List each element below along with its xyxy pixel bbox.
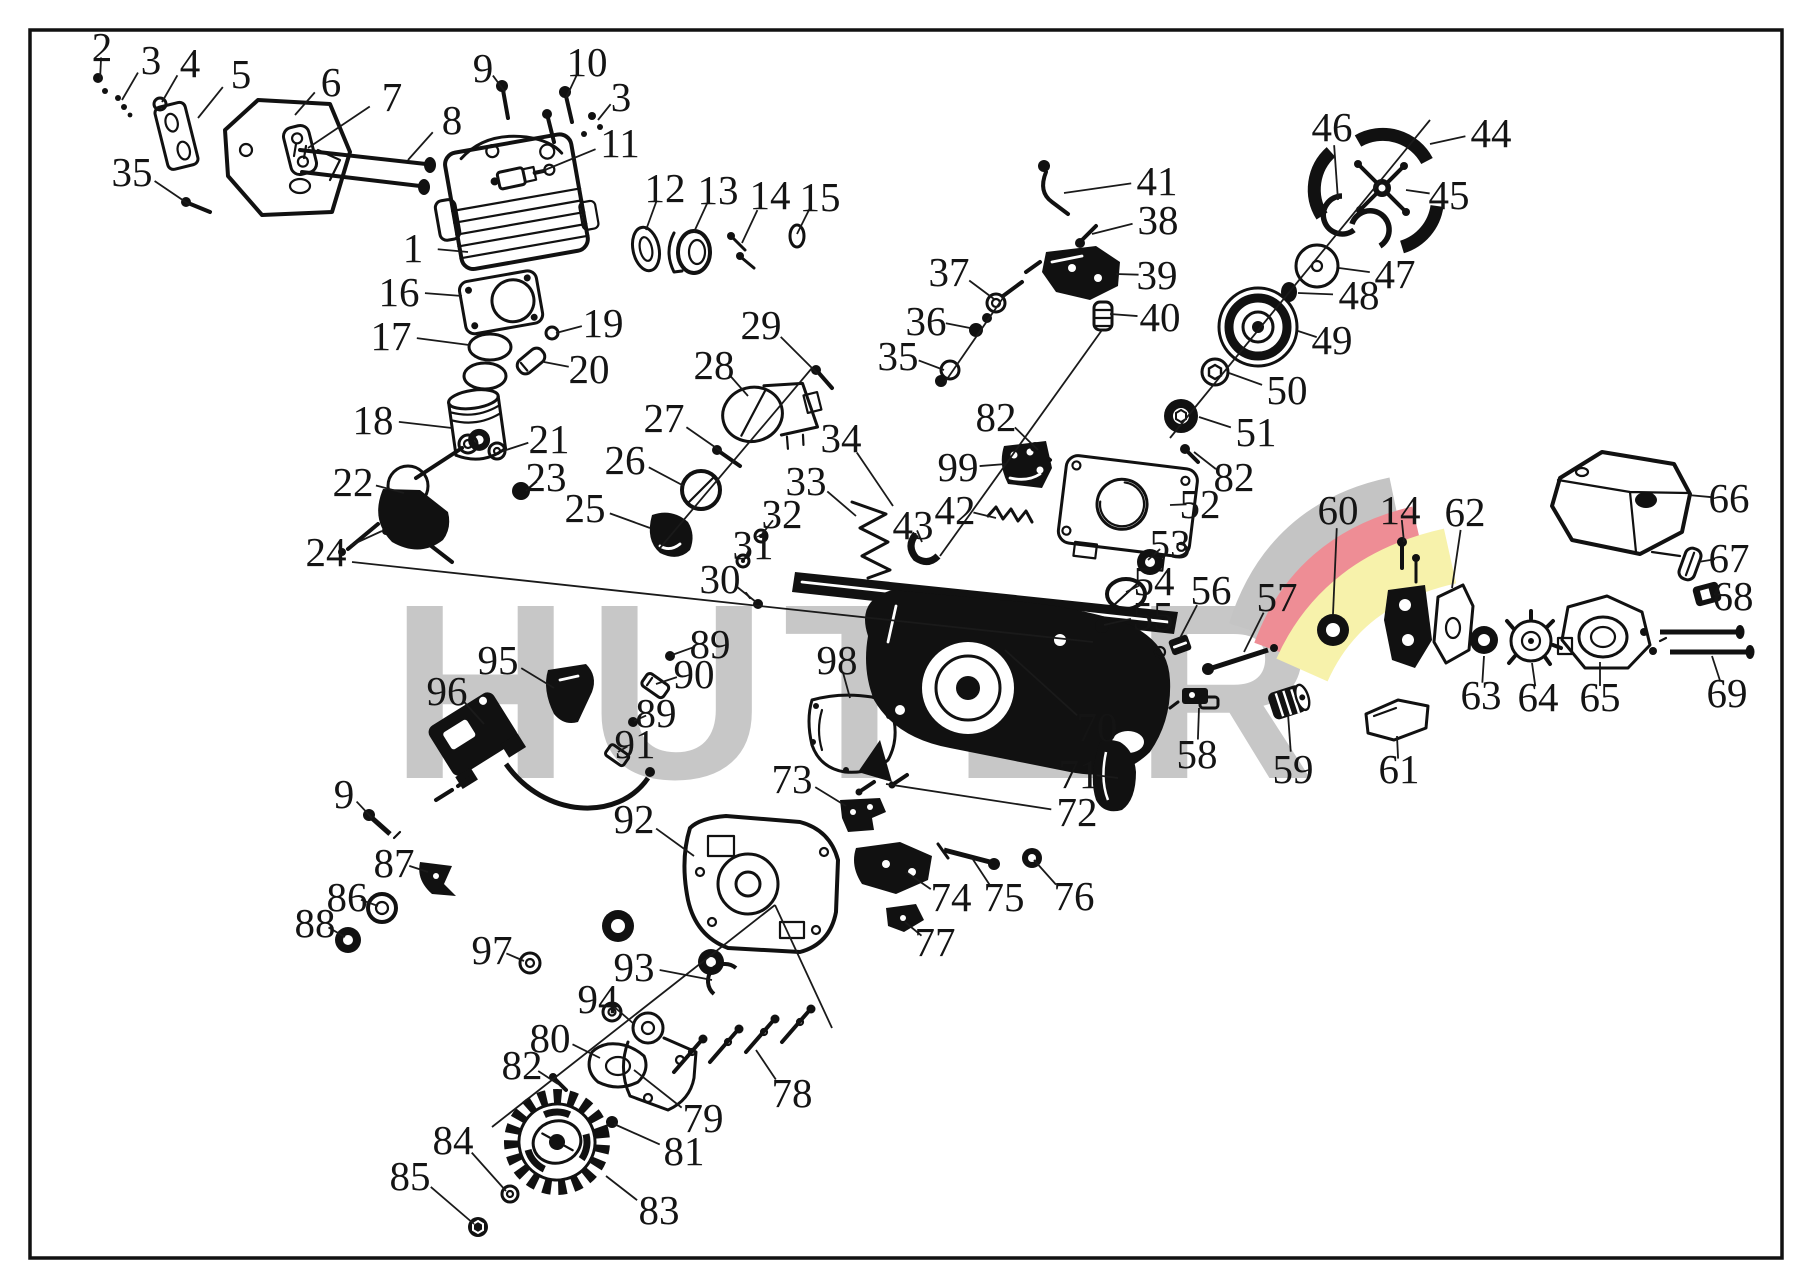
leader-line-99 (980, 464, 1006, 466)
part-label-73: 73 (772, 756, 813, 802)
part-label-27: 27 (644, 395, 685, 441)
part-label-2: 2 (92, 24, 113, 70)
leader-line-79 (634, 1070, 682, 1108)
leader-line-19 (556, 326, 582, 333)
part-label-25: 25 (565, 485, 606, 531)
part-label-38: 38 (1138, 197, 1179, 243)
part-label-28: 28 (694, 342, 735, 388)
leader-line-84 (472, 1153, 506, 1191)
part-label-56: 56 (1191, 567, 1232, 613)
part-label-55: 55 (1133, 593, 1174, 639)
leader-line-48 (1298, 293, 1333, 294)
leader-line-18 (399, 422, 452, 428)
part-label-13: 13 (698, 167, 739, 213)
exploded-view-diagram: HUTER (0, 0, 1809, 1283)
leader-line-85 (431, 1187, 474, 1224)
leader-line-36 (946, 323, 970, 328)
part-label-20: 20 (569, 346, 610, 392)
leader-line-17 (417, 338, 469, 345)
part-label-94: 94 (578, 976, 619, 1022)
spark-plug-11 (489, 161, 556, 191)
part-label-3: 3 (611, 74, 632, 120)
cover-plate-5 (154, 101, 200, 171)
leader-line-62 (1452, 530, 1461, 588)
part-label-12: 12 (645, 165, 686, 211)
part-label-58: 58 (1177, 731, 1218, 777)
base-gasket-16 (458, 269, 544, 335)
part-label-8: 8 (442, 97, 463, 143)
leader-line-35 (155, 181, 190, 205)
leader-line-27 (686, 427, 722, 452)
leader-line-44 (1430, 136, 1465, 144)
part-label-60: 60 (1318, 487, 1359, 533)
leader-line-51 (1199, 417, 1231, 427)
part-label-9: 9 (334, 771, 355, 817)
part-label-90: 90 (674, 651, 715, 697)
part-label-5: 5 (231, 51, 252, 97)
part-label-74: 74 (931, 874, 972, 920)
part-label-84: 84 (433, 1117, 474, 1163)
part-label-59: 59 (1273, 746, 1314, 792)
part-label-57: 57 (1257, 574, 1298, 620)
leader-line-26 (649, 467, 684, 486)
part-label-95: 95 (478, 637, 519, 683)
flywheel-83 (501, 1086, 614, 1199)
part-label-17: 17 (371, 313, 412, 359)
part-label-14: 14 (1380, 487, 1421, 533)
leader-line-41 (1064, 183, 1131, 193)
part-label-61: 61 (1379, 746, 1420, 792)
part-label-9: 9 (473, 45, 494, 91)
fuel-tank-66 (1552, 452, 1690, 554)
part-label-46: 46 (1312, 104, 1353, 150)
part-label-7: 7 (382, 74, 403, 120)
part-label-30: 30 (700, 556, 741, 602)
part-label-99: 99 (938, 444, 979, 490)
part-label-29: 29 (741, 302, 782, 348)
leader-line-35 (919, 360, 944, 370)
part-label-88: 88 (295, 900, 336, 946)
part-label-72: 72 (1057, 789, 1098, 835)
leader-line-7 (308, 106, 370, 148)
part-label-82: 82 (976, 394, 1017, 440)
part-label-69: 69 (1707, 670, 1748, 716)
head-screws-9-10-3 (496, 80, 603, 142)
part-label-23: 23 (526, 454, 567, 500)
part-label-49: 49 (1312, 317, 1353, 363)
leader-line-5 (198, 87, 223, 118)
construction-line-3 (945, 295, 1005, 382)
part-label-45: 45 (1429, 172, 1470, 218)
parts-artwork (93, 73, 1755, 1237)
part-label-11: 11 (600, 120, 639, 166)
part-label-62: 62 (1445, 489, 1486, 535)
part-label-15: 15 (800, 174, 841, 220)
part-label-91: 91 (615, 721, 656, 767)
part-label-34: 34 (821, 415, 862, 461)
leader-line-4 (162, 75, 177, 102)
leader-line-29 (781, 337, 818, 374)
leader-line-42 (973, 513, 996, 518)
leader-line-34 (857, 452, 893, 506)
part-label-68: 68 (1713, 573, 1754, 619)
part-label-24: 24 (306, 529, 347, 575)
leader-line-39 (1116, 274, 1139, 275)
leader-line-3 (122, 73, 138, 100)
part-label-48: 48 (1339, 272, 1380, 318)
leader-line-16 (425, 293, 462, 296)
piston-rings-17 (464, 334, 511, 389)
part-label-22: 22 (333, 459, 374, 505)
part-label-44: 44 (1471, 110, 1512, 156)
leader-line-1 (438, 249, 468, 252)
leader-line-8 (408, 132, 433, 160)
part-label-4: 4 (180, 40, 201, 86)
part-label-97: 97 (472, 927, 513, 973)
part-label-19: 19 (583, 300, 624, 346)
part-label-98: 98 (817, 637, 858, 683)
part-label-81: 81 (664, 1128, 705, 1174)
parts-diagram-page: HUTER (0, 0, 1809, 1283)
part-label-43: 43 (893, 502, 934, 548)
part-label-63: 63 (1461, 672, 1502, 718)
part-label-70: 70 (1077, 704, 1118, 750)
part-label-78: 78 (772, 1070, 813, 1116)
part-label-66: 66 (1709, 475, 1750, 521)
part-label-92: 92 (614, 796, 655, 842)
part-label-3: 3 (141, 37, 162, 83)
part-label-35: 35 (878, 333, 919, 379)
part-label-50: 50 (1267, 367, 1308, 413)
part-label-18: 18 (353, 397, 394, 443)
part-label-37: 37 (929, 249, 970, 295)
part-label-83: 83 (639, 1187, 680, 1233)
part-label-40: 40 (1140, 294, 1181, 340)
leader-line-33 (827, 491, 856, 516)
part-label-75: 75 (984, 874, 1025, 920)
part-label-6: 6 (321, 59, 342, 105)
leader-line-45 (1406, 190, 1430, 193)
leader-line-50 (1229, 373, 1262, 385)
leader-line-40 (1110, 314, 1138, 316)
intake-parts-12-15 (629, 225, 804, 273)
part-label-82: 82 (502, 1042, 543, 1088)
part-label-26: 26 (605, 437, 646, 483)
leader-line-3 (598, 104, 611, 120)
leader-line-38 (1092, 224, 1133, 234)
nut-84-85 (468, 1186, 518, 1237)
part-label-96: 96 (427, 668, 468, 714)
part-label-16: 16 (379, 269, 420, 315)
part-label-1: 1 (403, 225, 424, 271)
part-label-64: 64 (1518, 674, 1559, 720)
part-label-77: 77 (915, 919, 956, 965)
leader-line-25 (610, 513, 650, 528)
part-label-14: 14 (750, 172, 791, 218)
crankcase-cover-92 (684, 816, 838, 952)
part-label-35: 35 (112, 149, 153, 195)
part-label-87: 87 (374, 840, 415, 886)
part-label-39: 39 (1137, 252, 1178, 298)
leader-line-20 (544, 362, 569, 367)
part-label-76: 76 (1054, 873, 1095, 919)
leader-line-81 (614, 1124, 660, 1144)
part-label-47: 47 (1375, 251, 1416, 297)
part-label-85: 85 (390, 1153, 431, 1199)
leader-line-46 (1334, 145, 1338, 200)
part-label-42: 42 (935, 487, 976, 533)
leader-line-83 (606, 1176, 637, 1200)
leader-line-37 (969, 281, 994, 299)
part-label-51: 51 (1236, 409, 1277, 455)
part-label-65: 65 (1580, 674, 1621, 720)
leader-line-11 (540, 149, 596, 172)
part-label-93: 93 (614, 944, 655, 990)
part-label-10: 10 (567, 39, 608, 85)
